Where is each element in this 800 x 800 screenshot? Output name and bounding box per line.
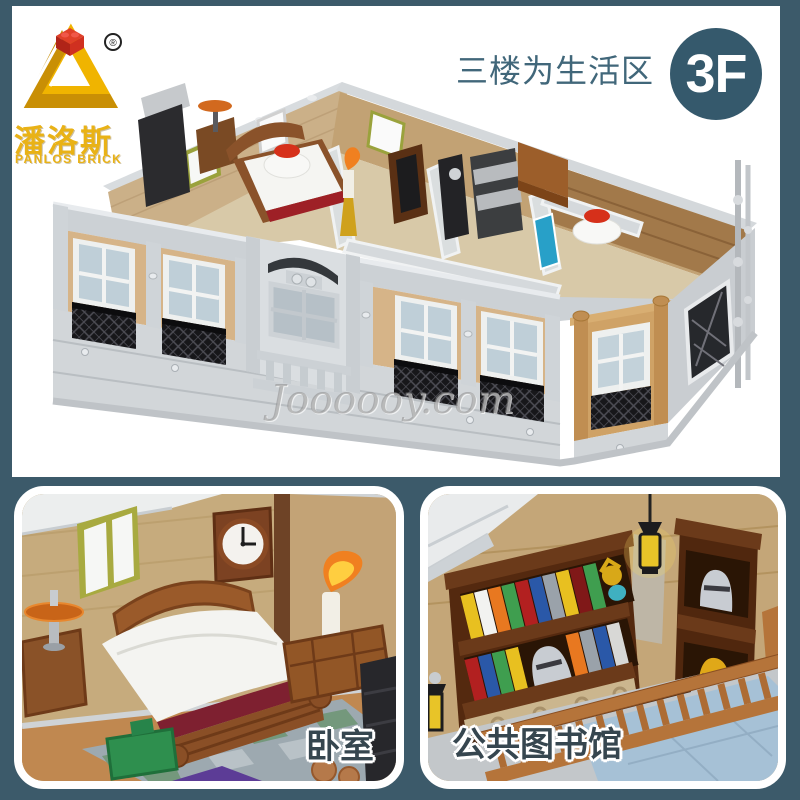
wall-clock <box>214 508 272 582</box>
top-panel: ® 潘洛斯 PANLOS BRICK 三楼为生活区 3F Joooooy.com <box>12 6 780 477</box>
brand-logo: ® 潘洛斯 PANLOS BRICK <box>12 6 192 186</box>
library-label: 公共图书馆 <box>452 717 622 766</box>
floor-badge-label: 3F <box>685 43 746 105</box>
green-toolbox <box>107 729 177 779</box>
page: ® 潘洛斯 PANLOS BRICK 三楼为生活区 3F Joooooy.com <box>0 0 800 800</box>
floor-badge: 3F <box>670 28 762 120</box>
bedroom-label: 卧室 <box>306 719 374 768</box>
corner-bay <box>560 296 674 461</box>
penrose-triangle-icon: ® <box>18 16 128 120</box>
brand-name-en: PANLOS BRICK <box>15 152 122 166</box>
registered-mark: ® <box>109 38 117 49</box>
floor-caption: 三楼为生活区 <box>456 46 654 92</box>
